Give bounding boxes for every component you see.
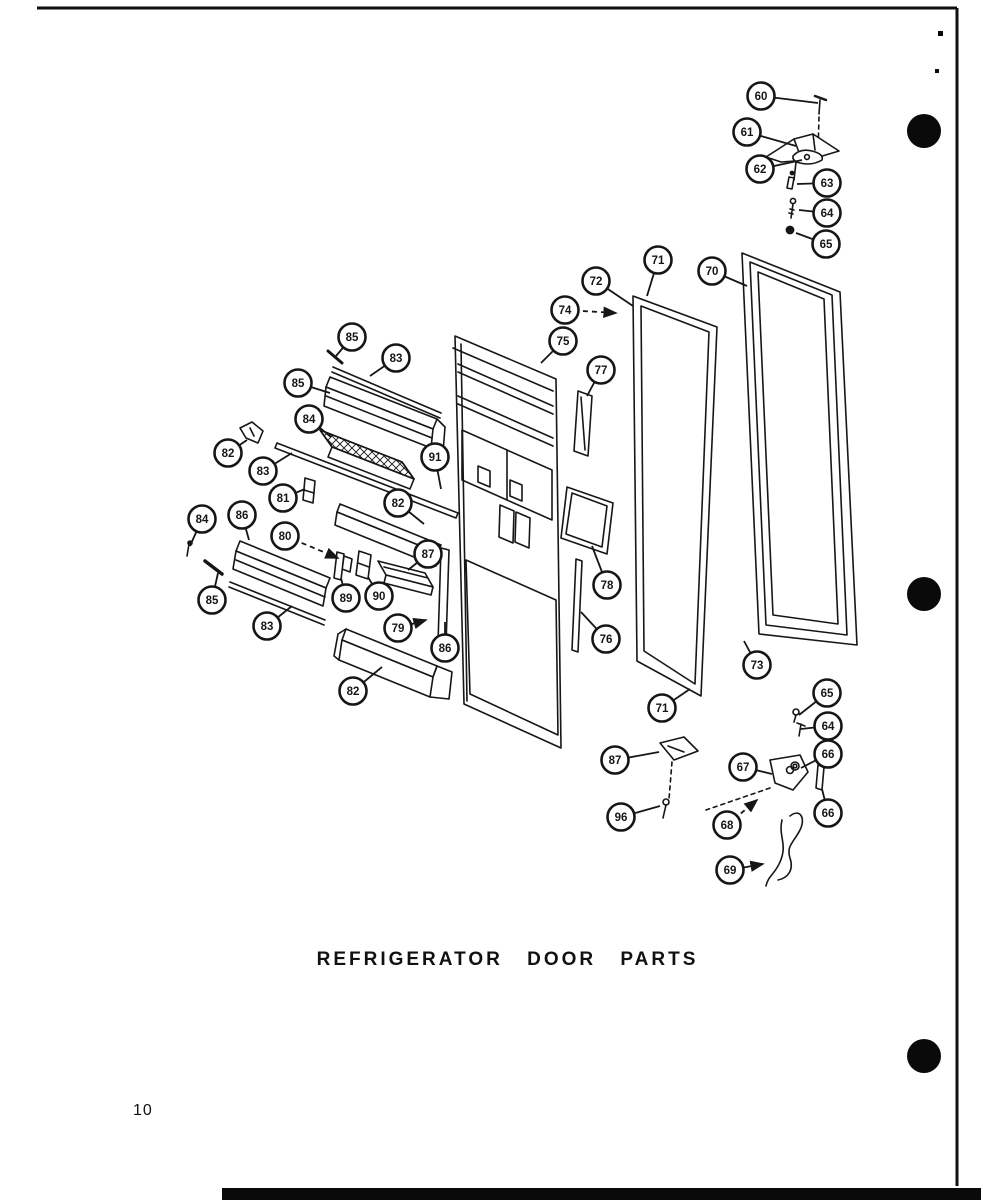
svg-text:67: 67 xyxy=(737,762,750,774)
callout-71: 71 xyxy=(649,695,676,722)
svg-text:90: 90 xyxy=(373,591,386,603)
svg-text:61: 61 xyxy=(741,127,754,139)
callout-69: 69 xyxy=(717,857,744,884)
svg-text:73: 73 xyxy=(751,660,764,672)
svg-text:66: 66 xyxy=(822,808,835,820)
svg-text:86: 86 xyxy=(439,643,452,655)
svg-text:82: 82 xyxy=(222,448,235,460)
svg-text:65: 65 xyxy=(820,239,833,251)
svg-text:64: 64 xyxy=(822,721,835,733)
callout-68: 68 xyxy=(714,812,741,839)
svg-text:71: 71 xyxy=(652,255,665,267)
svg-text:86: 86 xyxy=(236,510,249,522)
callout-89: 89 xyxy=(333,585,360,612)
punch-hole-mark xyxy=(907,114,941,148)
callout-66: 66 xyxy=(815,800,842,827)
svg-text:85: 85 xyxy=(206,595,219,607)
callout-83: 83 xyxy=(383,345,410,372)
callout-74: 74 xyxy=(552,297,579,324)
shelf-parts-left xyxy=(187,351,458,699)
svg-text:60: 60 xyxy=(755,91,768,103)
svg-text:89: 89 xyxy=(340,593,353,605)
callout-64: 64 xyxy=(814,200,841,227)
svg-text:83: 83 xyxy=(390,353,403,365)
svg-text:75: 75 xyxy=(557,336,570,348)
callout-70: 70 xyxy=(699,258,726,285)
refrigerator-door-shell xyxy=(453,336,561,748)
svg-text:85: 85 xyxy=(346,332,359,344)
parts-diagram: 6061626364657271707475778583858482838191… xyxy=(0,0,981,1200)
callout-90: 90 xyxy=(366,583,393,610)
callout-83: 83 xyxy=(250,458,277,485)
svg-text:87: 87 xyxy=(609,755,622,767)
callout-83: 83 xyxy=(254,613,281,640)
svg-text:70: 70 xyxy=(706,266,719,278)
callout-65: 65 xyxy=(813,231,840,258)
callout-85: 85 xyxy=(339,324,366,351)
callout-62: 62 xyxy=(747,156,774,183)
callout-71: 71 xyxy=(645,247,672,274)
punch-hole-mark xyxy=(907,577,941,611)
door-gasket xyxy=(742,253,857,645)
callout-91: 91 xyxy=(422,444,449,471)
svg-text:82: 82 xyxy=(392,498,405,510)
callout-85: 85 xyxy=(285,370,312,397)
callout-78: 78 xyxy=(594,572,621,599)
callout-66: 66 xyxy=(815,741,842,768)
callout-77: 77 xyxy=(588,357,615,384)
trim-strip-77 xyxy=(574,391,592,456)
callout-96: 96 xyxy=(608,804,635,831)
margin-tick xyxy=(938,31,943,36)
callout-67: 67 xyxy=(730,754,757,781)
callout-76: 76 xyxy=(593,626,620,653)
svg-text:66: 66 xyxy=(822,749,835,761)
binding-bar xyxy=(222,1188,981,1200)
bottom-hinge-parts xyxy=(660,709,824,886)
svg-text:77: 77 xyxy=(595,365,608,377)
callout-61: 61 xyxy=(734,119,761,146)
callout-82: 82 xyxy=(215,440,242,467)
svg-text:84: 84 xyxy=(303,414,316,426)
callout-75: 75 xyxy=(550,328,577,355)
svg-text:76: 76 xyxy=(600,634,613,646)
svg-text:83: 83 xyxy=(257,466,270,478)
svg-text:62: 62 xyxy=(754,164,767,176)
margin-tick xyxy=(935,69,939,73)
svg-text:71: 71 xyxy=(656,703,669,715)
callout-64: 64 xyxy=(815,713,842,740)
callout-86: 86 xyxy=(432,635,459,662)
svg-text:80: 80 xyxy=(279,531,292,543)
svg-text:64: 64 xyxy=(821,208,834,220)
callout-79: 79 xyxy=(385,615,412,642)
svg-text:87: 87 xyxy=(422,549,435,561)
svg-text:84: 84 xyxy=(196,514,209,526)
callout-87: 87 xyxy=(602,747,629,774)
callout-60: 60 xyxy=(748,83,775,110)
callout-73: 73 xyxy=(744,652,771,679)
svg-text:83: 83 xyxy=(261,621,274,633)
svg-text:85: 85 xyxy=(292,378,305,390)
page-title: REFRIGERATOR DOOR PARTS xyxy=(17,949,981,971)
svg-text:68: 68 xyxy=(721,820,734,832)
svg-text:91: 91 xyxy=(429,452,442,464)
callout-82: 82 xyxy=(340,678,367,705)
callout-81: 81 xyxy=(270,485,297,512)
margin-marks xyxy=(907,31,943,1073)
punch-hole-mark xyxy=(907,1039,941,1073)
svg-text:82: 82 xyxy=(347,686,360,698)
svg-text:74: 74 xyxy=(559,305,572,317)
callout-63: 63 xyxy=(814,170,841,197)
callout-86: 86 xyxy=(229,502,256,529)
svg-text:79: 79 xyxy=(392,623,405,635)
svg-text:96: 96 xyxy=(615,812,628,824)
svg-text:65: 65 xyxy=(821,688,834,700)
svg-text:81: 81 xyxy=(277,493,290,505)
svg-text:63: 63 xyxy=(821,178,834,190)
catalog-page: 6061626364657271707475778583858482838191… xyxy=(0,0,981,1200)
svg-text:72: 72 xyxy=(590,276,603,288)
page-number: 10 xyxy=(133,1102,153,1120)
svg-text:69: 69 xyxy=(724,865,737,877)
callout-72: 72 xyxy=(583,268,610,295)
callout-80: 80 xyxy=(272,523,299,550)
callout-84: 84 xyxy=(296,406,323,433)
callout-65: 65 xyxy=(814,680,841,707)
callout-87: 87 xyxy=(415,541,442,568)
inner-door-panel xyxy=(633,296,717,696)
svg-text:78: 78 xyxy=(601,580,614,592)
access-panel-78 xyxy=(561,487,613,554)
callout-82: 82 xyxy=(385,490,412,517)
strip-76 xyxy=(572,559,582,652)
callout-85: 85 xyxy=(199,587,226,614)
callout-84: 84 xyxy=(189,506,216,533)
